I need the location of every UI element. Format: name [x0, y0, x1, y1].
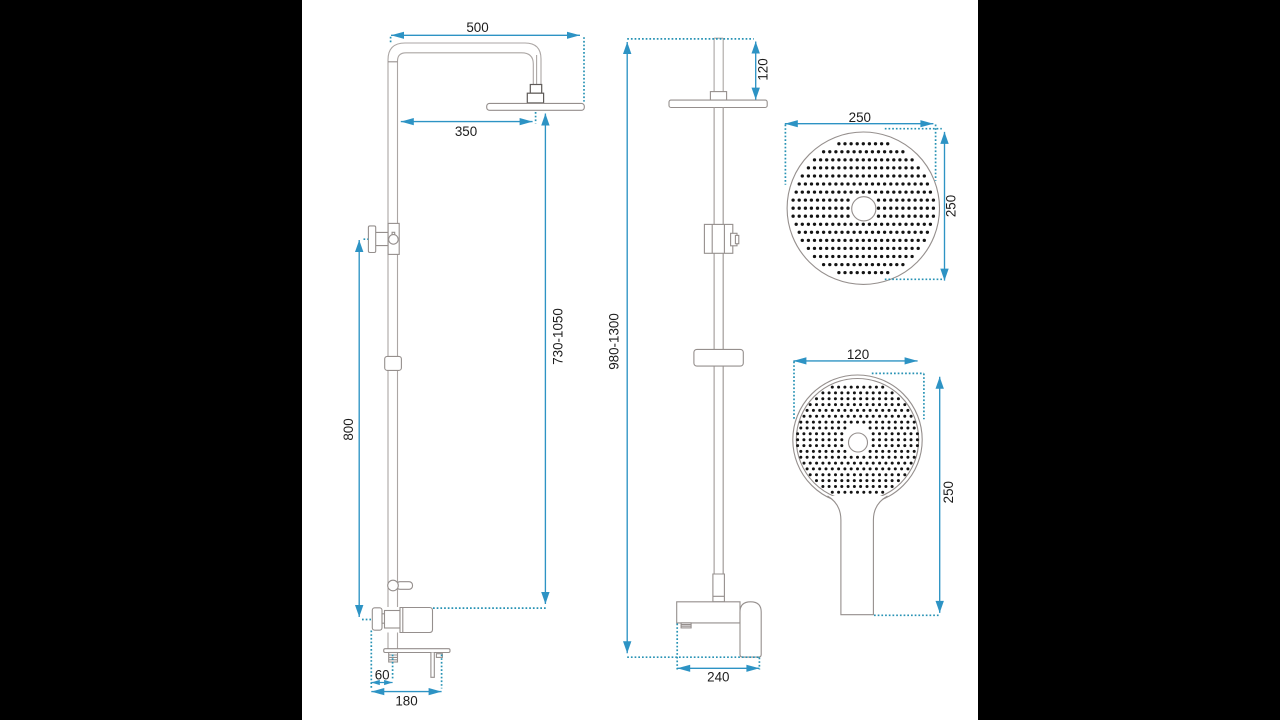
svg-text:980-1300: 980-1300 — [607, 313, 622, 370]
svg-text:120: 120 — [756, 58, 771, 80]
svg-text:730-1050: 730-1050 — [551, 308, 566, 365]
svg-text:250: 250 — [941, 481, 956, 503]
svg-text:60: 60 — [375, 668, 390, 683]
svg-text:240: 240 — [707, 670, 729, 685]
svg-text:180: 180 — [395, 694, 417, 709]
svg-text:250: 250 — [849, 110, 871, 125]
svg-text:800: 800 — [341, 418, 356, 440]
svg-text:250: 250 — [943, 195, 958, 217]
svg-text:120: 120 — [847, 347, 869, 362]
svg-text:350: 350 — [455, 124, 477, 139]
svg-text:500: 500 — [466, 20, 488, 35]
